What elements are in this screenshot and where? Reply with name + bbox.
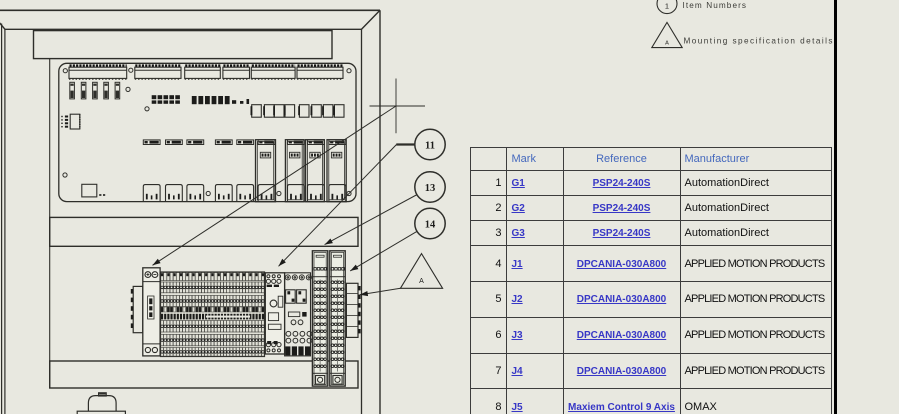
svg-text:A: A <box>419 278 424 285</box>
svg-text:A: A <box>665 40 669 46</box>
svg-text:13: 13 <box>425 183 436 194</box>
svg-text:11: 11 <box>425 140 435 151</box>
svg-text:Mounting specification details: Mounting specification details <box>684 37 834 46</box>
svg-text:1: 1 <box>665 1 669 10</box>
svg-text:Item Numbers: Item Numbers <box>683 1 748 10</box>
svg-text:14: 14 <box>425 219 436 230</box>
